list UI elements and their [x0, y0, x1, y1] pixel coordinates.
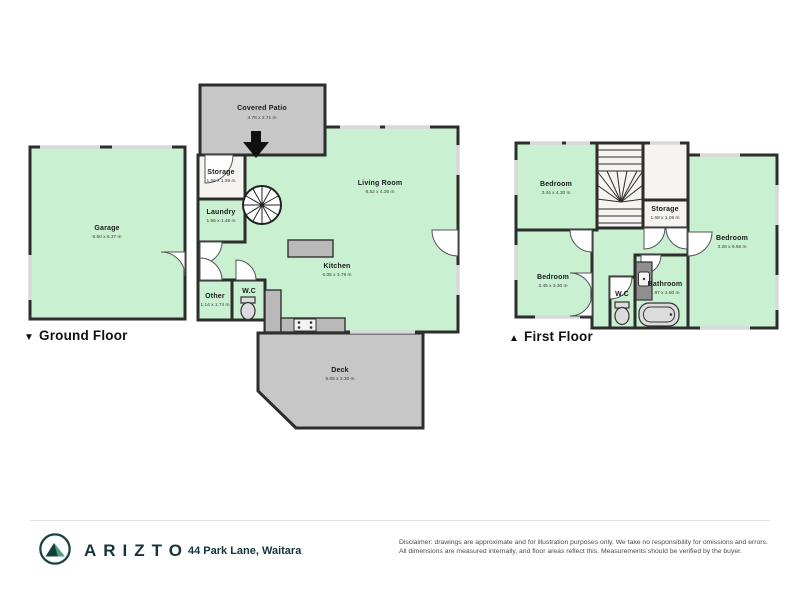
room-dims: 6.05 x 3.30 m: [325, 376, 354, 382]
first-floor-title: First Floor: [524, 329, 593, 344]
disclaimer-text: Disclaimer: drawings are approximate and…: [399, 538, 774, 556]
room-dims: 1.97 x 2.80 m: [650, 290, 679, 296]
stove-icon: [294, 319, 316, 331]
room-label: Garage: [94, 225, 119, 232]
down-triangle-icon: ▼: [24, 332, 34, 343]
spiral-staircase-icon: [243, 186, 281, 224]
room-dims: 3.45 x 3.30 m: [538, 283, 567, 289]
first-toilet-icon: [615, 302, 629, 325]
room-dims: 1.14 x 1.74 m: [200, 302, 229, 308]
room-label: W.C: [615, 291, 629, 298]
room-label: Bedroom: [716, 235, 748, 242]
room-label: W.C: [242, 288, 256, 295]
up-triangle-icon: ▲: [509, 333, 519, 344]
stair-landing: [643, 143, 688, 200]
floor-plans-drawing: Covered Patio 4.78 x 2.71 m Storage 1.56…: [0, 0, 800, 520]
room-dims: 3.44 x 4.30 m: [541, 190, 570, 196]
disclaimer-line-2: All dimensions are measured internally, …: [399, 547, 774, 556]
room-label: Kitchen: [323, 263, 350, 270]
room-dims: 1.68 x 1.05 m: [650, 215, 679, 221]
ground-floor-title: Ground Floor: [39, 328, 128, 343]
room-label: Other: [205, 293, 225, 300]
ground-toilet-icon: [241, 297, 255, 320]
garage-room: [30, 147, 185, 319]
bathtub-icon: [639, 303, 679, 326]
room-label: Storage: [207, 169, 234, 176]
room-label: Bathroom: [648, 281, 683, 288]
room-dims: 3.26 x 6.66 m: [717, 244, 746, 250]
room-dims: 6.50 x 6.37 m: [92, 234, 121, 240]
footer-divider: [30, 520, 770, 521]
first-storage-room: [643, 200, 688, 228]
room-label: Covered Patio: [237, 105, 287, 112]
floor-plan-page: Covered Patio 4.78 x 2.71 m Storage 1.56…: [0, 0, 800, 600]
room-label: Living Room: [358, 180, 403, 187]
room-dims: 6.05 x 3.79 m: [322, 272, 351, 278]
room-label: Storage: [651, 206, 678, 213]
staircase-area: [597, 143, 643, 228]
room-label: Bedroom: [540, 181, 572, 188]
brand-name: ARIZTO: [84, 541, 189, 561]
room-label: Laundry: [206, 209, 235, 216]
arizto-logo-icon: [38, 532, 72, 566]
room-dims: 4.78 x 2.71 m: [247, 115, 276, 121]
first-floor-plan: Bedroom 3.44 x 4.30 m Storage 1.68 x 1.0…: [509, 143, 777, 344]
room-label: Deck: [331, 367, 349, 374]
room-label: Bedroom: [537, 274, 569, 281]
property-address: 44 Park Lane, Waitara: [188, 545, 301, 557]
disclaimer-line-1: Disclaimer: drawings are approximate and…: [399, 538, 774, 547]
room-dims: 8.52 x 4.36 m: [365, 189, 394, 195]
room-dims: 1.56 x 1.59 m: [206, 178, 235, 184]
kitchen-island: [288, 240, 333, 257]
room-dims: 1.56 x 1.48 m: [206, 218, 235, 224]
other-room: [198, 280, 232, 320]
ground-floor-plan: Covered Patio 4.78 x 2.71 m Storage 1.56…: [24, 85, 458, 428]
